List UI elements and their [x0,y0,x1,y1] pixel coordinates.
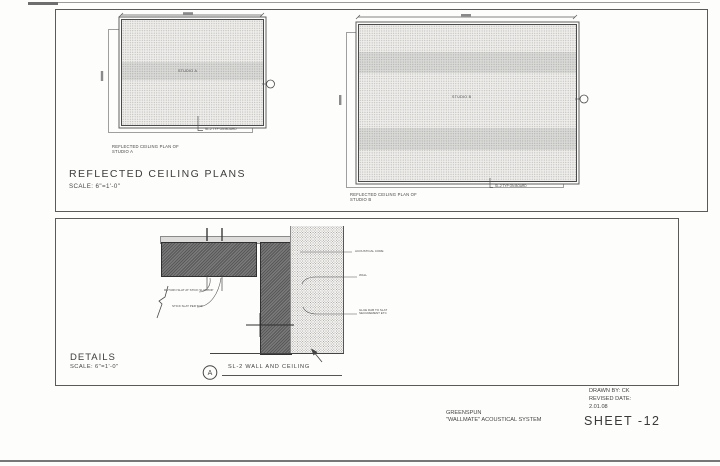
label-glue-dab-line2: SECUREMENT ETC [359,312,387,316]
detail-title-underline [222,375,342,376]
scan-edge-bottom [0,460,720,462]
label-acoustical-core: ACOUSTICAL CORE [355,250,384,254]
detail-marker-letter: A [208,370,213,377]
plan-b-detail-marker-circle [580,95,588,103]
plan-a-left-dim-text-mark [101,71,103,81]
details-section-title: DETAILS [70,352,116,363]
system-name: "WALLMATE" ACOUSTICAL SYSTEM [446,417,541,425]
plan-b-left-dim-text-mark [339,95,341,105]
scan-mark-top-left [28,2,58,5]
scan-edge-top [37,2,700,3]
detail-base-arrow-head [311,349,318,356]
sheet-number: SHEET -12 [584,414,661,428]
plan-a-detail-marker-circle [267,80,275,88]
detail-title: SL-2 WALL AND CEILING [228,364,310,370]
label-glue-dab: GLUE DAB TO SLAT SECUREMENT ETC [359,309,387,317]
detail-linework: A [150,222,420,384]
title-block-revised-label: REVISED DATE: [589,396,631,404]
plan-b-callout-leader [490,178,493,188]
label-stick-slat: STICK SLAT PER TOP [172,305,203,309]
ceiling-plans-linework [50,8,710,213]
label-return-slat: RETURN SLAT AT STICK SLAT TOP [164,289,213,293]
label-wall: WALL [359,274,367,278]
title-block-drawn-by: DRAWN BY: CK [589,388,630,396]
firm-name: GREENSPUN [446,410,481,418]
plan-a-callout-leader [198,116,203,131]
plan-b-dim-text-mark [461,14,471,16]
plan-a-dim-text-mark [183,12,193,14]
drawing-sheet: STUDIO A SL-2 TYP ON BOARD REFLECTED CEI… [0,0,720,466]
ceiling-section-scale: SCALE: 6"=1'-0" [69,183,120,190]
detail-leader-glue-dab [303,307,357,314]
title-block-revised-date: 2.01.08 [589,404,608,412]
ceiling-section-title: REFLECTED CEILING PLANS [69,168,246,180]
details-section-scale: SCALE: 6"=1'-0" [70,364,118,370]
detail-leader-wall [302,277,357,284]
detail-crosshair [246,313,294,337]
